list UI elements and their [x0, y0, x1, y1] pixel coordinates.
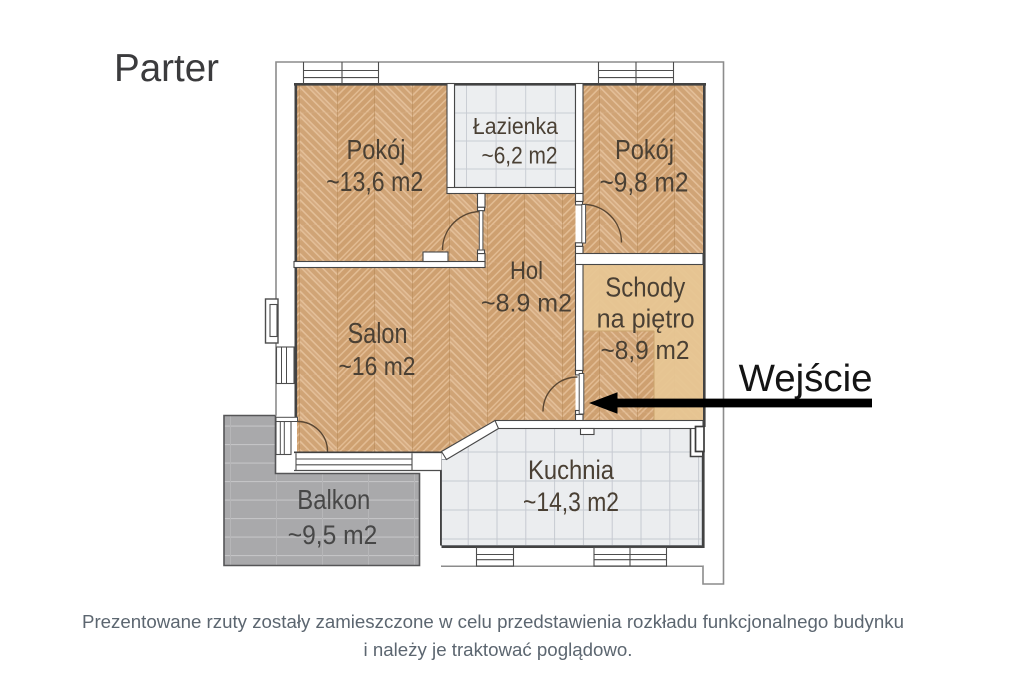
svg-text:Hol: Hol — [510, 257, 543, 285]
svg-text:~14,3 m2: ~14,3 m2 — [523, 487, 619, 517]
svg-text:Kuchnia: Kuchnia — [528, 455, 615, 485]
svg-text:~9,5 m2: ~9,5 m2 — [288, 520, 378, 550]
svg-text:Schody: Schody — [605, 272, 685, 303]
svg-text:Wejście: Wejście — [739, 358, 873, 400]
svg-text:i należy je traktować poglądow: i należy je traktować poglądowo. — [364, 639, 633, 660]
svg-text:Łazienka: Łazienka — [473, 113, 558, 139]
svg-text:~16 m2: ~16 m2 — [339, 351, 416, 381]
svg-text:Prezentowane rzuty zostały zam: Prezentowane rzuty zostały zamieszczone … — [82, 611, 904, 632]
svg-text:Pokój: Pokój — [347, 134, 406, 165]
svg-text:~8.9 m2: ~8.9 m2 — [481, 290, 572, 318]
svg-text:~9,8 m2: ~9,8 m2 — [600, 167, 689, 198]
svg-text:~13,6 m2: ~13,6 m2 — [326, 166, 423, 197]
svg-text:na piętro: na piętro — [597, 306, 695, 334]
svg-text:Pokój: Pokój — [615, 134, 674, 165]
svg-text:~6,2 m2: ~6,2 m2 — [482, 143, 558, 170]
svg-text:~8,9 m2: ~8,9 m2 — [601, 337, 690, 365]
svg-text:Salon: Salon — [348, 318, 408, 350]
svg-text:Balkon: Balkon — [297, 484, 370, 515]
svg-text:Parter: Parter — [114, 47, 219, 90]
